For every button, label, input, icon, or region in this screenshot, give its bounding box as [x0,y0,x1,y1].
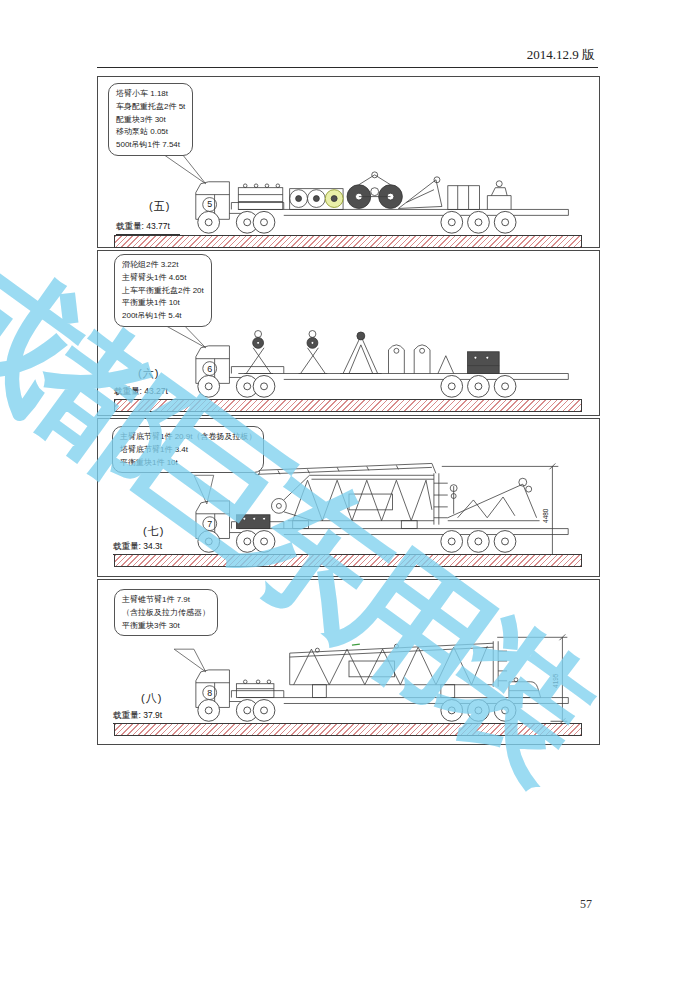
wheels [198,700,516,722]
callout-line: 平衡重块3件 30t [122,620,210,633]
equipment-crate [448,186,480,210]
ground-hatch [114,554,582,567]
connector-plates [389,345,454,374]
callout-line: 上车平衡重托盘2件 20t [122,285,204,298]
page-number: 57 [580,897,592,912]
callout-line: 平衡重块1件 10t [122,297,204,310]
hook-weight-block [468,352,500,374]
document-page: 2014.12.9 版 5 [0,0,700,989]
figure-panel-5: 5 [97,76,600,248]
callout-line: 平衡重块1件 10t [120,457,256,470]
rear-strut-assembly [448,478,540,520]
ground-hatch [114,235,582,248]
header-rule [97,67,598,68]
main-boom-taper-section [290,641,507,697]
load-weight: 载重量: 34.3t [113,541,172,555]
panel-label: (七) [143,524,164,539]
cargo-callout: 塔臂小车 1.18t 车身配重托盘2件 5t 配重块3件 30t 移动泵站 0.… [108,83,193,156]
wheels [198,211,516,233]
sensor-unit-box [509,678,541,698]
load-weight: 载重量: 43.77t [116,221,180,235]
cargo-callout: 主臂底节臂1件 20.9t（含卷扬及拉板） 塔臂底节臂1件 3.4t 平衡重块1… [112,426,264,473]
panel-label: (五) [149,199,170,214]
dimension-value: 4480 [542,508,549,523]
counterweight-pallet [238,184,282,210]
version-label: 2014.12.9 版 [0,46,595,64]
pulley-stand [299,331,328,374]
boom-head-frame [340,332,381,373]
callout-line: 200t吊钩1件 5.4t [122,310,204,323]
jib-strut [398,177,441,209]
pulley-stand [244,331,273,374]
figure-panel-8: 8 [97,579,600,745]
pump-station [290,189,343,210]
callout-line: 塔臂底节臂1件 3.4t [120,444,256,457]
callout-line: 主臂臂头1件 4.65t [122,272,204,285]
panel-label: (八) [141,691,162,706]
tower-jib-butt-section [255,463,436,474]
callout-line: 主臂底节臂1件 20.9t（含卷扬及拉板） [120,431,256,444]
callout-line: 塔臂小车 1.18t [116,88,185,101]
load-weight: 载重量: 43.27t [114,386,178,400]
load-weight: 载重量: 37.9t [113,710,172,724]
ground-hatch [114,399,582,412]
panel-label: (六) [138,366,159,381]
truck-number: 7 [207,519,212,529]
cargo-callout: 滑轮组2件 3.22t 主臂臂头1件 4.65t 上车平衡重托盘2件 20t 平… [114,254,212,327]
wheels [198,375,516,397]
figure-panel-7: 7 [97,418,600,577]
callout-line: 车身配重托盘2件 5t [116,101,185,114]
callout-line: 滑轮组2件 3.22t [122,259,204,272]
ground-hatch [114,723,582,736]
truck-number: 8 [207,688,212,698]
callout-line: 移动泵站 0.05t [116,126,185,139]
counterweight-block [236,515,270,529]
figure-panel-6: 6 [97,250,600,416]
main-boom-butt-section [271,473,447,528]
tower-jib-trolley [347,172,402,209]
wheels [198,531,516,553]
truck-number: 6 [207,364,212,374]
counterweight-pallet [236,680,274,698]
callout-line: 主臂锥节臂1件 7.9t [122,594,210,607]
callout-line: 配重块3件 30t [116,114,185,127]
truck-number: 5 [207,199,212,209]
callout-line: （含拉板及拉力传感器） [122,607,210,620]
hook-block [487,181,511,210]
callout-line: 500t吊钩1件 7.54t [116,139,185,152]
dimension-value: 4195 [552,673,559,688]
cargo-callout: 主臂锥节臂1件 7.9t （含拉板及拉力传感器） 平衡重块3件 30t [114,589,218,636]
